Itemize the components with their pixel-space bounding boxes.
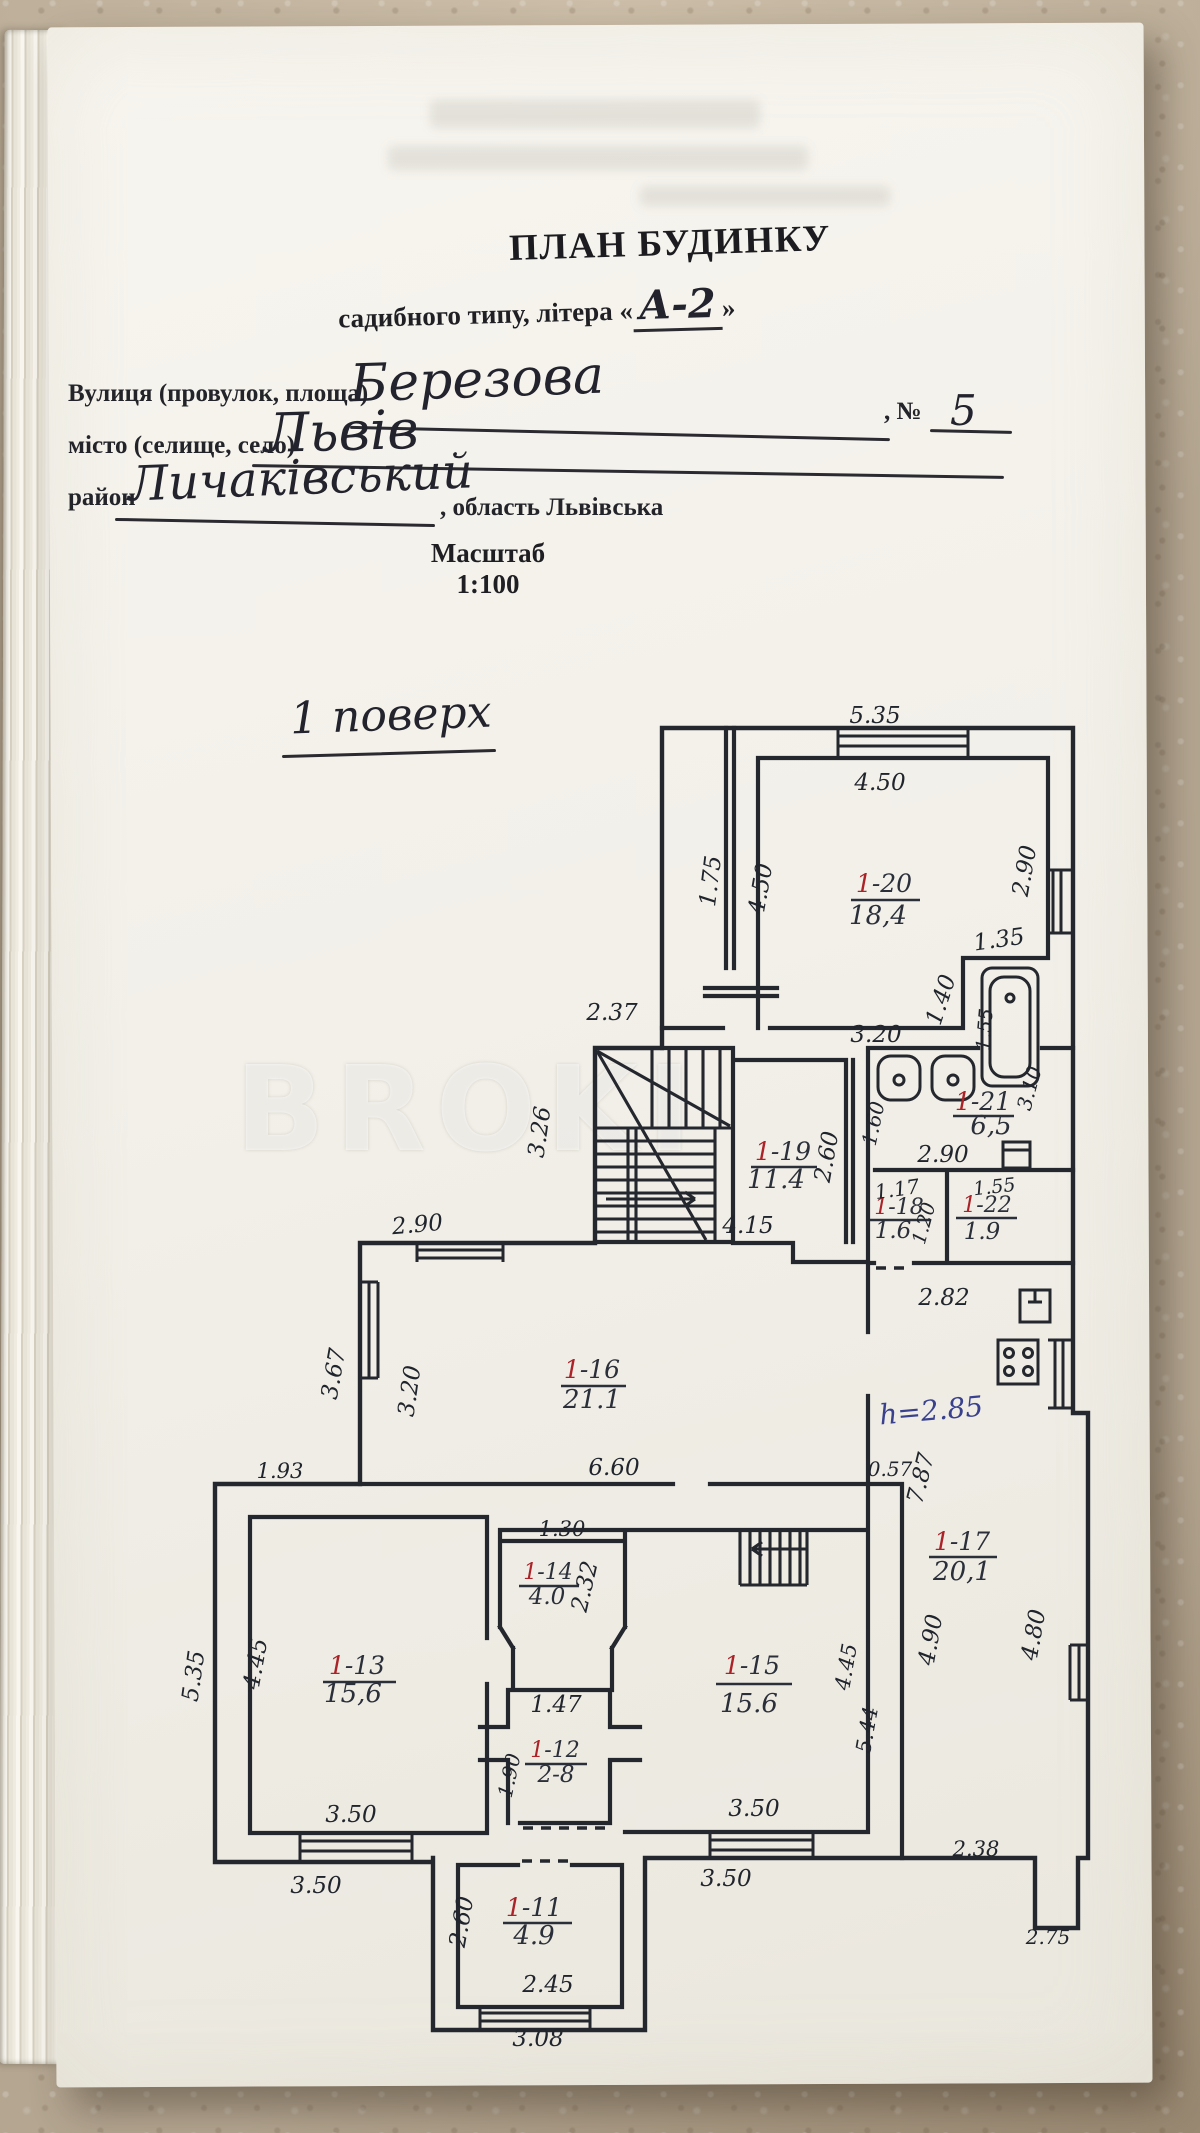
dim-label: 2.82 <box>917 1285 969 1311</box>
dim-label: 6.60 <box>588 1455 639 1481</box>
dim-label: 3.20 <box>850 1022 901 1048</box>
dim-label: 2.90 <box>390 1210 444 1240</box>
dim-label: 4.15 <box>721 1213 773 1239</box>
dim-label: 4.45 <box>239 1636 274 1692</box>
dim-label: 2.37 <box>585 1000 638 1026</box>
dim-label: 3.50 <box>325 1802 376 1828</box>
stove-icon <box>998 1340 1038 1384</box>
room-number: 1-13 <box>329 1651 385 1680</box>
dim-label: 1.55 <box>972 1007 998 1051</box>
dim-label: 2.60 <box>445 1894 480 1950</box>
room-number: 1-19 <box>755 1137 811 1166</box>
dim-label: 1.47 <box>530 1692 582 1718</box>
dim-label: 3.50 <box>700 1866 751 1892</box>
height-note: h=2.85 <box>878 1390 984 1432</box>
dim-label: 2.90 <box>916 1142 968 1168</box>
room-area: 6,5 <box>970 1111 1011 1141</box>
floor-plan-drawing: 1-20 18,4 1-21 6,5 1-19 11.4 1-18 1.6 1-… <box>0 0 1200 2133</box>
room-number: 1-11 <box>506 1893 562 1922</box>
burner <box>1005 1349 1014 1358</box>
dim-label: 1.75 <box>695 854 727 908</box>
room-number: 1-20 <box>856 869 912 898</box>
room-area: 2-8 <box>536 1762 574 1788</box>
room-area: 20,1 <box>932 1557 991 1587</box>
dim-label: 3.20 <box>394 1364 427 1418</box>
dim-label: 2.38 <box>952 1837 1000 1861</box>
room-area: 21.1 <box>562 1385 621 1415</box>
room-area: 4.9 <box>512 1921 554 1951</box>
stairs-basement <box>740 1532 807 1585</box>
dim-label: 1.30 <box>539 1517 586 1541</box>
photo-scene: ПЛАН БУДИНКУ садибного типу, літера «А-2… <box>0 0 1200 2133</box>
room-area: 4.0 <box>528 1584 566 1610</box>
room-number: 1-16 <box>564 1355 620 1384</box>
room-number: 1-15 <box>724 1651 780 1680</box>
room-number: 1-12 <box>530 1738 579 1763</box>
dim-label: 5.35 <box>849 703 900 729</box>
washbasin-drain <box>948 1075 958 1085</box>
room-area: 18,4 <box>849 901 907 931</box>
room-area: 1.6 <box>875 1218 912 1244</box>
dim-label: 3.50 <box>290 1873 341 1899</box>
room-number: 1-14 <box>523 1560 572 1585</box>
bathtub-drain <box>1006 994 1014 1002</box>
toilet-icon <box>1003 1142 1030 1168</box>
room-area: 1.9 <box>964 1219 1001 1245</box>
burner <box>1024 1367 1033 1376</box>
burner <box>1024 1349 1033 1358</box>
dim-label: 3.10 <box>1012 1063 1047 1112</box>
room-number: 1-17 <box>934 1527 990 1556</box>
dim-label: 2.90 <box>1008 843 1043 899</box>
dim-label: 1.60 <box>857 1099 890 1148</box>
dim-label: 1.40 <box>921 971 962 1028</box>
room-area: 11.4 <box>747 1165 805 1195</box>
dim-label: 1.55 <box>972 1174 1016 1200</box>
dim-label: 4.80 <box>1017 1607 1052 1663</box>
dim-label: 2.45 <box>521 1972 573 1998</box>
dim-label: 4.50 <box>853 770 905 796</box>
sink-tap <box>1028 1290 1042 1302</box>
dim-label: 3.67 <box>317 1346 352 1401</box>
dim-label: 3.50 <box>728 1796 779 1822</box>
dim-label: 2.60 <box>810 1129 845 1185</box>
dim-label: 5.35 <box>178 1649 211 1703</box>
washbasin-drain <box>894 1075 904 1085</box>
burner <box>1005 1367 1014 1376</box>
dim-label: 1.35 <box>972 924 1026 957</box>
dim-label: 1.93 <box>257 1459 304 1483</box>
washbasin-icon <box>878 1056 920 1100</box>
dim-label: 4.90 <box>914 1612 949 1668</box>
dim-label: 3.26 <box>524 1105 557 1159</box>
dim-label: 0.57 <box>868 1457 913 1481</box>
stairs-main <box>595 1048 733 1242</box>
dim-label: 2.75 <box>1025 1925 1071 1949</box>
dim-label: 4.45 <box>830 1642 862 1693</box>
dim-label: 5.44 <box>851 1705 883 1755</box>
dim-label: 3.08 <box>512 2026 563 2052</box>
dim-label: 4.50 <box>744 861 779 917</box>
room-area: 15,6 <box>324 1679 382 1709</box>
room-area: 15.6 <box>720 1689 778 1719</box>
